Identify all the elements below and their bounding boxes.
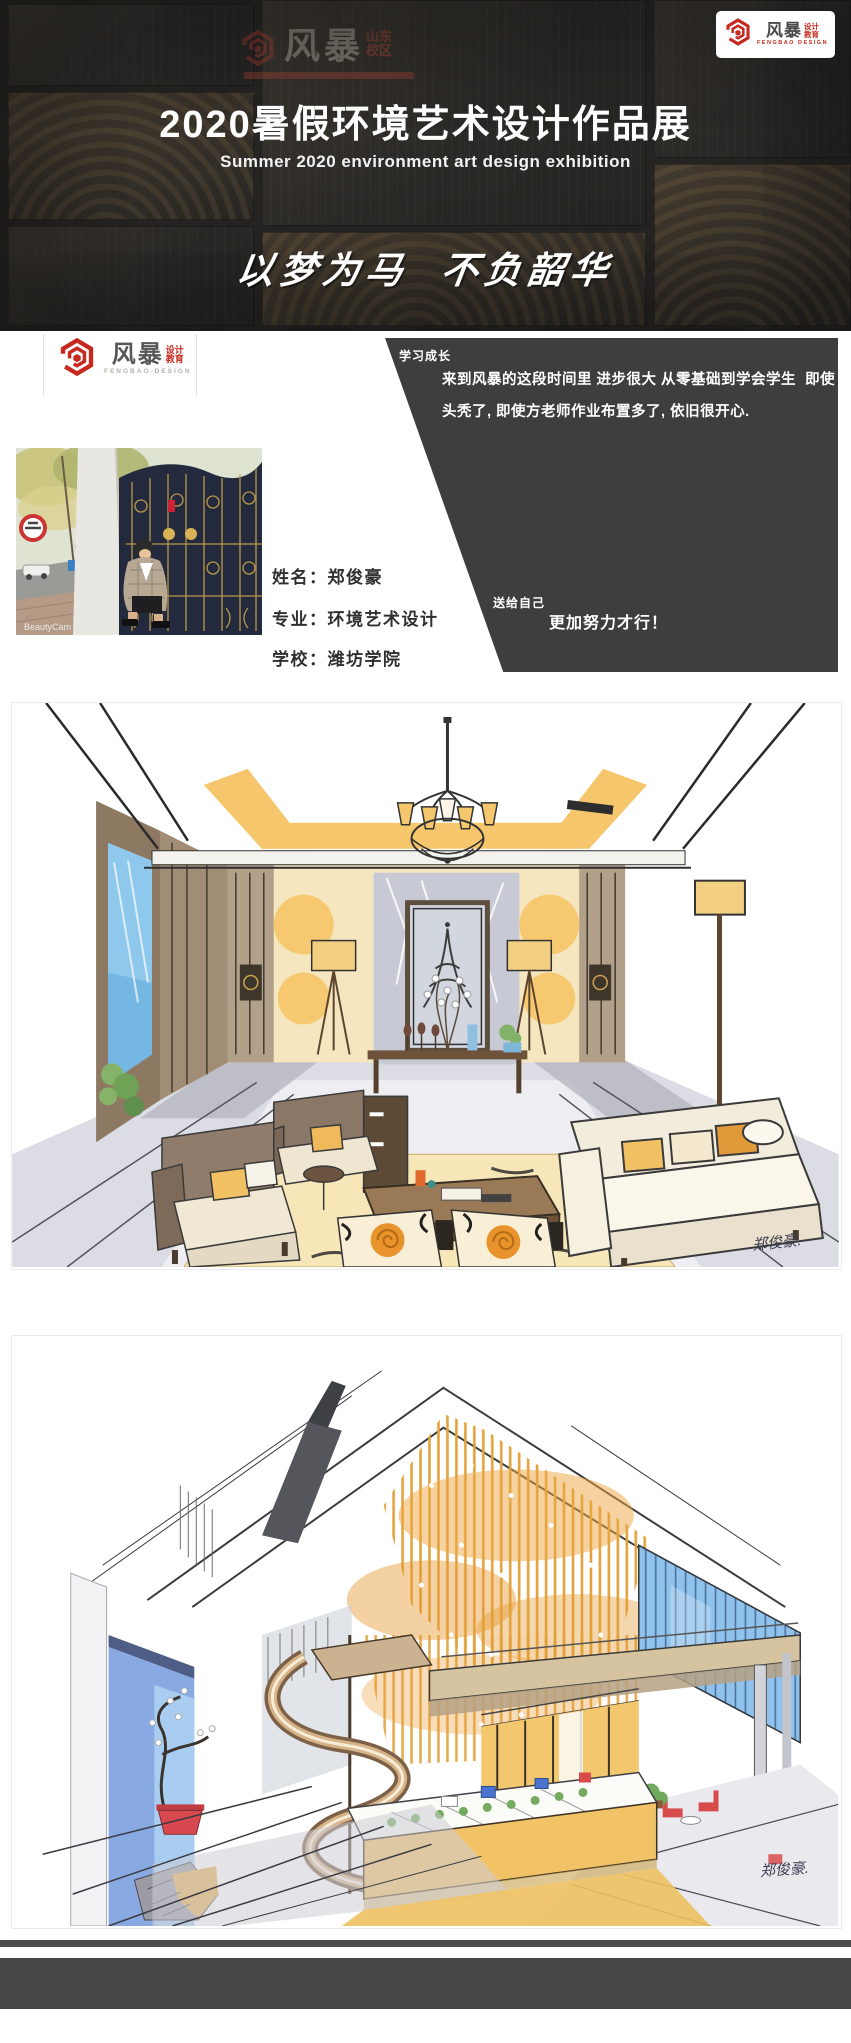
exhibition-slogan: 以梦为马 不负韶华 <box>0 240 851 294</box>
brand-logo-box: 风暴 设计 教育 FENGBAO DESIGN <box>716 11 835 58</box>
exhibition-title: 2020暑假环境艺术设计作品展 <box>0 93 851 148</box>
white-pillar <box>73 448 123 635</box>
lobby-sketch: 郑俊豪. <box>12 1336 839 1926</box>
brand-name-cn: 风暴 <box>766 22 802 39</box>
student-photo: BeautyCam <box>16 448 262 635</box>
hexagon-logo-icon <box>56 336 98 383</box>
brand-name-en: FENGBAO DESIGN <box>757 41 828 47</box>
brand-suffix: 设计 教育 <box>166 346 184 364</box>
brand-name-en: FENGBAO-DESIGN <box>104 369 192 376</box>
brand-lockup: 风暴 设计 教育 FENGBAO-DESIGN <box>104 343 192 376</box>
artwork-signature: 郑俊豪. <box>759 1860 809 1880</box>
poster-page: 风暴 山东 校区 2020暑假环境艺术设计作品展 Summer 2020 env… <box>0 0 851 2043</box>
artwork-living-room: 郑俊豪. <box>11 702 842 1270</box>
brand-suffix: 设计 教育 <box>804 23 819 38</box>
logo-divider-left <box>43 334 44 396</box>
growth-line-2: 头秃了, 即使方老师作业布置多了, 依旧很开心. <box>442 400 750 421</box>
logo-divider-right <box>196 334 197 396</box>
living-room-sketch: 郑俊豪. <box>12 703 839 1267</box>
profile-brand-logo: 风暴 设计 教育 FENGBAO-DESIGN <box>56 336 192 383</box>
info-name: 姓名：郑俊豪 <box>272 563 383 588</box>
growth-label: 学习成长 <box>399 347 451 364</box>
gift-label: 送给自己 <box>493 594 545 611</box>
brand-lockup: 风暴 设计 教育 FENGBAO DESIGN <box>757 22 828 47</box>
gate-lock <box>168 500 175 512</box>
brand-name-cn: 风暴 <box>112 343 164 367</box>
student-photo-illustration: BeautyCam <box>16 448 262 635</box>
footer-divider-bar <box>0 1940 851 1947</box>
footer-bar <box>0 1958 851 2009</box>
growth-panel: 学习成长 来到风暴的这段时间里 进步很大 从零基础到学会学生 即使 头秃了, 即… <box>385 338 838 672</box>
artwork-lobby: 郑俊豪. <box>11 1335 842 1929</box>
back-wall <box>228 865 625 1065</box>
exhibition-subtitle: Summer 2020 environment art design exhib… <box>0 152 851 172</box>
info-major: 专业：环境艺术设计 <box>272 605 439 630</box>
header-banner: 风暴 山东 校区 2020暑假环境艺术设计作品展 Summer 2020 env… <box>0 0 851 331</box>
photo-watermark: BeautyCam <box>24 622 71 632</box>
hexagon-logo-icon <box>723 17 753 52</box>
gift-text: 更加努力才行！ <box>549 609 668 633</box>
growth-line-1: 来到风暴的这段时间里 进步很大 从零基础到学会学生 即使 <box>442 368 835 389</box>
info-school: 学校：潍坊学院 <box>272 645 402 670</box>
